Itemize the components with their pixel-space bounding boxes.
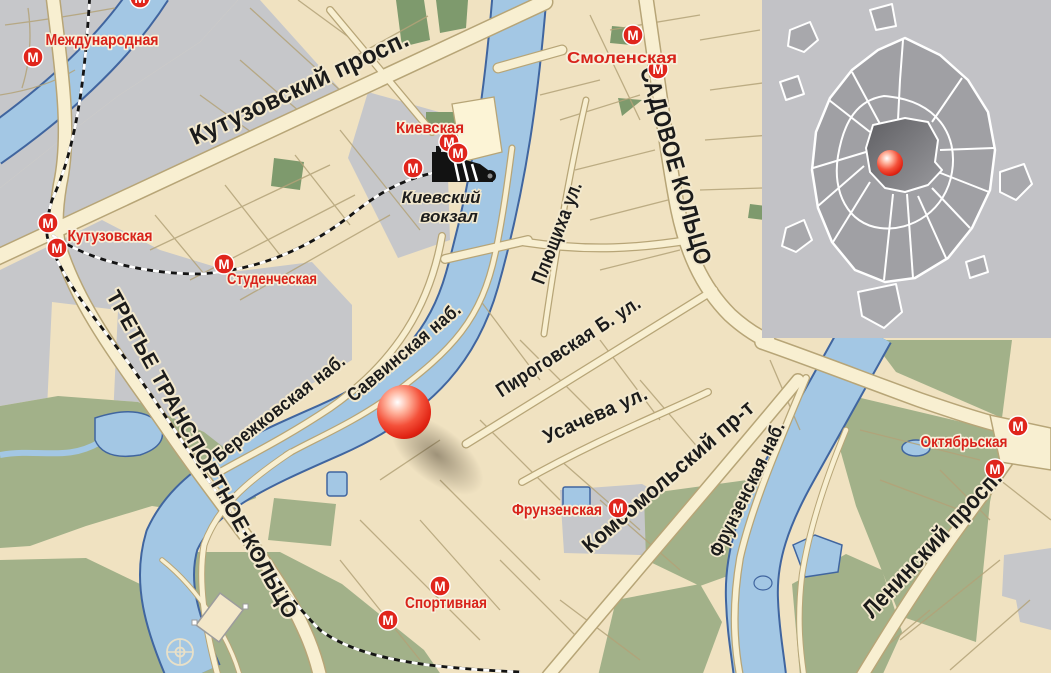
svg-text:М: М: [989, 462, 1000, 477]
metro-station-label: Спортивная: [405, 595, 487, 612]
metro-icon: М: [1008, 416, 1028, 436]
svg-text:М: М: [218, 257, 229, 272]
metro-icon: М: [430, 576, 450, 596]
svg-text:М: М: [407, 161, 418, 176]
metro-station-label: Студенческая: [227, 271, 317, 288]
map-canvas[interactable]: Кутузовский просп.САДОВОЕ КОЛЬЦОПлющиха …: [0, 0, 1051, 673]
svg-text:М: М: [51, 241, 62, 256]
metro-station-label: Смоленская: [567, 50, 677, 67]
metro-icon: М: [378, 610, 398, 630]
metro-icon: М: [985, 459, 1005, 479]
metro-icon: М: [23, 47, 43, 67]
svg-text:М: М: [42, 216, 53, 231]
metro-icon: М: [608, 498, 628, 518]
svg-text:М: М: [134, 0, 145, 6]
svg-text:М: М: [382, 613, 393, 628]
svg-text:М: М: [452, 146, 463, 161]
svg-text:М: М: [1012, 419, 1023, 434]
metro-station-label: Кутузовская: [68, 228, 153, 245]
svg-text:М: М: [434, 579, 445, 594]
metro-station-label: Международная: [46, 32, 159, 49]
metro-station-label: Фрунзенская: [512, 502, 602, 519]
location-marker[interactable]: [377, 385, 431, 439]
moscow-city-map[interactable]: Кутузовский просп.САДОВОЕ КОЛЬЦОПлющиха …: [0, 0, 1051, 673]
metro-icon: М: [403, 158, 423, 178]
inset-map[interactable]: [762, 0, 1051, 338]
inset-center-district: [866, 118, 942, 192]
metro-icon: М: [38, 213, 58, 233]
metro-icon: М: [623, 25, 643, 45]
svg-text:М: М: [27, 50, 38, 65]
metro-station-label: Октябрьская: [921, 434, 1008, 451]
inset-location-marker[interactable]: [877, 150, 903, 176]
svg-text:М: М: [627, 28, 638, 43]
metro-station-label: Киевская: [396, 120, 464, 137]
metro-icon: М: [47, 238, 67, 258]
metro-icon: М: [448, 143, 468, 163]
svg-text:М: М: [612, 501, 623, 516]
